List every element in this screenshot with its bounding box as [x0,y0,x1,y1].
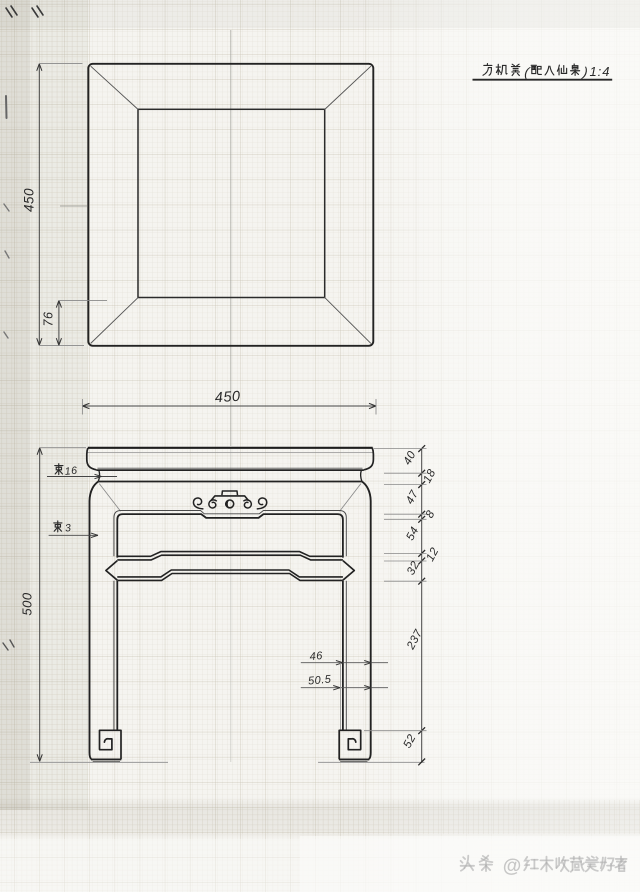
svg-text:46: 46 [309,650,324,663]
svg-text:3: 3 [64,522,72,535]
svg-text:450: 450 [214,389,241,407]
svg-text:1:4: 1:4 [589,64,610,79]
svg-text:450: 450 [22,188,37,212]
svg-text:50.5: 50.5 [308,673,333,687]
svg-text:76: 76 [41,312,55,327]
svg-text:16: 16 [64,465,78,478]
svg-text:@: @ [503,856,522,877]
svg-text:500: 500 [20,592,35,615]
